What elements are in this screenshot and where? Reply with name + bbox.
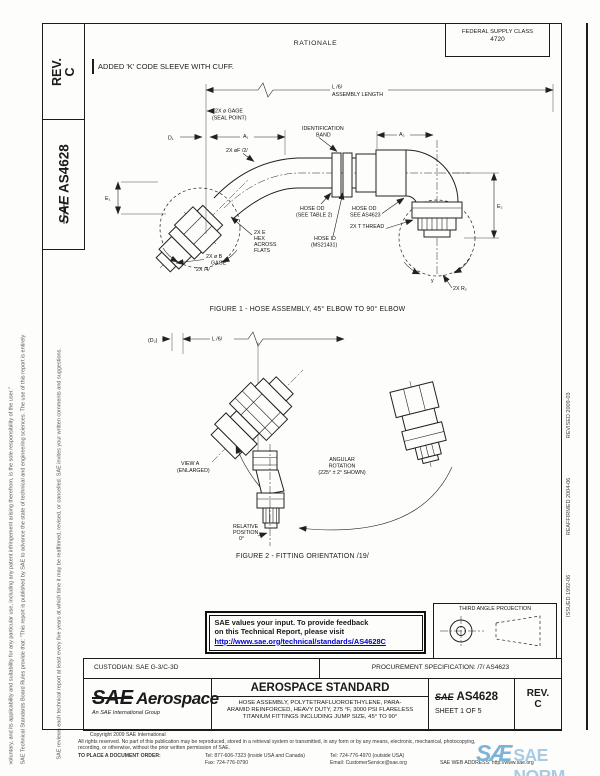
title-block-rev-value: C — [515, 699, 561, 710]
rev-label: REV. — [51, 57, 64, 85]
issued-date: ISSUED 1992-06 — [566, 575, 572, 617]
label-angular-2: ROTATION — [329, 464, 356, 470]
label-od-ref-1: HOSE OD — [352, 206, 377, 212]
figure1-caption: FIGURE 1 - HOSE ASSEMBLY, 45° ELBOW TO 9… — [85, 306, 530, 313]
sae-norm-watermark: SÆ SAE NORM INTERNATIONAL — [476, 740, 598, 776]
watermark-sae-icon: SÆ — [476, 740, 510, 767]
figure2-drawing: (D₂) L /6/ VIE — [85, 326, 562, 548]
title-block: SAEAerospace An SAE International Group … — [83, 678, 562, 731]
sae-mini-logo: SAE — [435, 692, 454, 702]
standard-title-line2: ARAMID REINFORCED, HEAVY DUTY, 275 °F, 3… — [212, 707, 428, 714]
title-block-rev-label: REV. — [515, 688, 561, 699]
page-outer-border — [586, 23, 588, 730]
change-note: ADDED 'K' CODE SLEEVE WITH CUFF. — [98, 62, 234, 71]
label-relative-2: POSITION — [233, 530, 258, 536]
label-b-gage-1: 2X ø B — [206, 254, 223, 260]
label-id-band-1: IDENTIFICATION — [302, 126, 344, 132]
label-hex-4: FLATS — [254, 248, 271, 254]
fsc-label: FEDERAL SUPPLY CLASS — [446, 28, 549, 36]
label-note4: 2X /4/ — [196, 267, 210, 273]
standard-title-line1: HOSE ASSEMBLY, POLYTETRAFLUOROETHYLENE, … — [212, 700, 428, 707]
standard-title-cell: AEROSPACE STANDARD HOSE ASSEMBLY, POLYTE… — [211, 679, 428, 730]
label-hose-od-2: (SEE TABLE 2) — [296, 212, 333, 218]
dim-length-fig2: L /6/ — [212, 337, 223, 343]
label-angular-1: ANGULAR — [329, 457, 355, 463]
dim-a2: A₂ — [399, 132, 405, 138]
sheet-number: SHEET 1 OF 5 — [435, 708, 514, 715]
standard-title-line3: TITANIUM FITTINGS INCLUDING JUMP SIZE, 4… — [212, 714, 428, 721]
dim-d1: D₁ — [168, 136, 174, 142]
sae-logo-vertical: SAE — [56, 196, 71, 224]
copyright-line: Copyright 2009 SAE International — [90, 732, 166, 738]
tel-outside: Tel: 724-776-4970 (outside USA) — [330, 753, 404, 759]
label-hose-od-1: HOSE OD — [300, 206, 325, 212]
rights-line2: recording, or otherwise, without the pri… — [78, 745, 230, 751]
fsc-value: 4720 — [446, 36, 549, 44]
label-hose-id-1: HOSE ID — [314, 236, 336, 242]
label-od-ref-2: SEE AS4623 — [350, 212, 381, 218]
rationale-title: RATIONALE — [268, 40, 363, 47]
aerospace-logo-text: Aerospace — [136, 689, 218, 708]
feedback-url-link[interactable]: http://www.sae.org/technical/standards/A… — [215, 637, 386, 646]
dim-a1: A₁ — [243, 134, 249, 140]
dim-assembly-length-1: L /6/ — [332, 85, 343, 91]
rev-cell: REV. C — [514, 679, 561, 730]
rotation-symbol: y — [431, 278, 434, 284]
label-id-band-2: BAND — [316, 132, 331, 138]
order-label: TO PLACE A DOCUMENT ORDER: — [78, 753, 161, 759]
rev-box: REV. C — [42, 23, 85, 120]
change-bar — [92, 59, 94, 74]
third-angle-projection-symbol-icon — [434, 612, 554, 650]
rev-value: C — [64, 57, 77, 85]
label-b-gage-2: GAGE — [211, 260, 227, 266]
feedback-line2: on this Technical Report, please visit — [215, 627, 417, 637]
dim-d2: (D₂) — [148, 338, 158, 344]
figure2-geometry: (D₂) L /6/ VIE — [148, 332, 452, 546]
dim-e1: E₁ — [105, 196, 111, 202]
federal-supply-class-box: FEDERAL SUPPLY CLASS 4720 — [445, 23, 550, 57]
doc-number-value: AS4628 — [457, 691, 499, 703]
feedback-box: SAE values your input. To provide feedba… — [205, 611, 426, 654]
custodian-row: CUSTODIAN: SAE G-3/C-3D PROCUREMENT SPEC… — [83, 658, 562, 679]
watermark-title: SAE NORM — [513, 745, 598, 776]
label-angular-3: (225° ± 2° SHOWN) — [318, 470, 365, 476]
label-f-dia: 2X øF /2/ — [226, 148, 248, 154]
label-thread: 2X T THREAD — [350, 224, 384, 230]
dim-r2: 2X R₂ — [453, 286, 467, 292]
third-angle-projection-box: THIRD ANGLE PROJECTION — [433, 603, 557, 659]
tel-inside: Tel: 877-606-7323 (inside USA and Canada… — [205, 753, 305, 759]
label-view-a-2: (ENLARGED) — [177, 468, 210, 474]
sae-logo-text: SAE — [92, 687, 133, 709]
fax-number: Fax: 724-776-0790 — [205, 760, 248, 766]
label-view-a-1: VIEW A — [181, 461, 200, 467]
dim-assembly-length-2: ASSEMBLY LENGTH — [332, 92, 383, 98]
dim-e2: E₂ — [497, 204, 503, 210]
procurement-cell: PROCUREMENT SPECIFICATION: /7/ AS4623 — [319, 659, 561, 678]
aerospace-standard-heading: AEROSPACE STANDARD — [212, 679, 428, 697]
revised-date: REVISED 2009-03 — [566, 392, 572, 438]
reaffirmed-date: REAFFIRMED 2004-06 — [566, 478, 572, 535]
label-gage-2: (SEAL POINT) — [212, 116, 247, 122]
figure2-caption: FIGURE 2 - FITTING ORIENTATION /19/ — [85, 553, 520, 560]
left-margin-text-line2: voluntary, and its applicability and sui… — [8, 145, 17, 765]
email-address: Email: CustomerService@sae.org — [330, 760, 407, 766]
doc-number-vertical: AS4628 — [56, 144, 71, 193]
custodian-cell: CUSTODIAN: SAE G-3/C-3D — [84, 659, 319, 678]
sae-standard-cover-page: voluntary, and its applicability and sui… — [0, 0, 600, 776]
label-relative-3: 0° — [239, 536, 244, 542]
label-hose-id-2: (MS21431) — [311, 242, 337, 248]
label-gage-1: 2X ø GAGE — [215, 109, 243, 115]
figure1-drawing: L /6/ ASSEMBLY LENGTH 2X ø GAGE (SEAL PO… — [85, 78, 562, 303]
doc-number-box: SAEAS4628 — [42, 119, 85, 250]
left-margin-text-line1: SAE Technical Standards Board Rules prov… — [20, 145, 29, 765]
sae-aerospace-logo: SAEAerospace An SAE International Group — [84, 679, 211, 730]
logo-tagline: An SAE International Group — [92, 710, 211, 716]
feedback-line1: SAE values your input. To provide feedba… — [215, 618, 417, 628]
doc-number-cell: SAEAS4628 SHEET 1 OF 5 — [428, 679, 514, 730]
right-margin-revision-history: ISSUED 1992-06 REAFFIRMED 2004-06 REVISE… — [565, 287, 575, 617]
